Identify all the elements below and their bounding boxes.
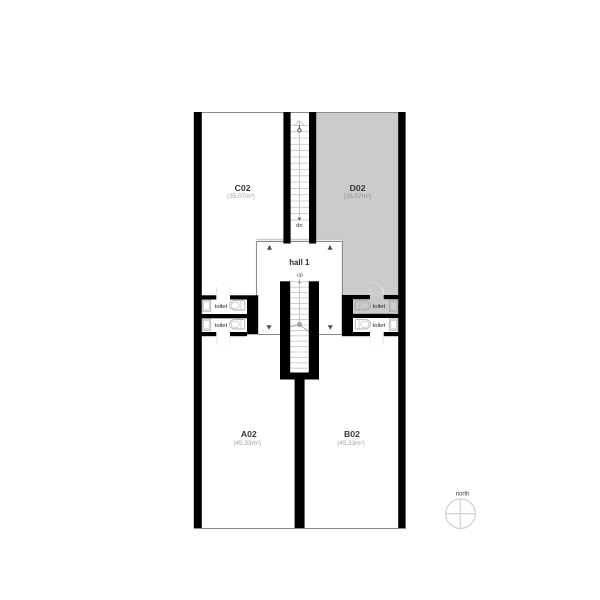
svg-text:(45,33m²): (45,33m²): [233, 440, 261, 447]
svg-text:toilet: toilet: [373, 323, 386, 329]
svg-text:D02: D02: [350, 183, 366, 193]
svg-text:toilet: toilet: [373, 304, 386, 310]
svg-text:up: up: [296, 273, 302, 279]
svg-text:(35,07m²): (35,07m²): [344, 193, 372, 200]
svg-text:toilet: toilet: [215, 304, 228, 310]
svg-text:(45,33m²): (45,33m²): [337, 440, 365, 447]
svg-text:dn: dn: [296, 223, 302, 229]
svg-text:hall 1: hall 1: [289, 258, 310, 267]
svg-text:B02: B02: [344, 429, 360, 439]
svg-text:C02: C02: [235, 183, 251, 193]
svg-text:north: north: [456, 492, 470, 498]
svg-text:toilet: toilet: [215, 323, 228, 329]
svg-text:(35,07m²): (35,07m²): [227, 193, 255, 200]
svg-text:A02: A02: [241, 429, 257, 439]
